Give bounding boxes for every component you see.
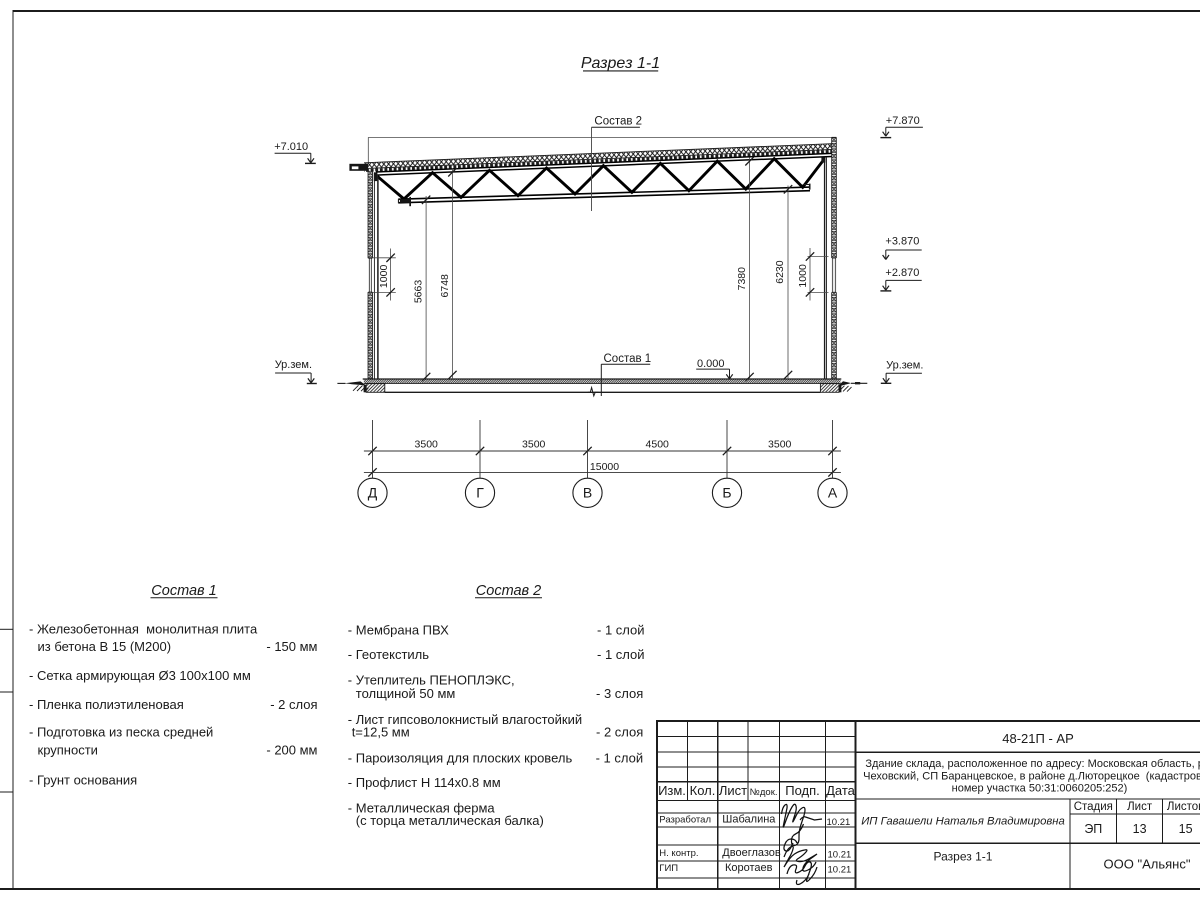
svg-text:ЭП: ЭП [1084, 822, 1102, 836]
svg-text:6230: 6230 [774, 260, 786, 284]
svg-text:Д: Д [368, 485, 378, 501]
svg-text:Состав 2: Состав 2 [476, 583, 541, 599]
svg-text:1000: 1000 [797, 264, 809, 288]
svg-text:Дата: Дата [826, 783, 856, 798]
svg-text:- 1 слой: - 1 слой [596, 751, 644, 766]
svg-text:Ур.зем.: Ур.зем. [886, 359, 923, 371]
svg-text:- Пленка полиэтиленовая: - Пленка полиэтиленовая [29, 697, 184, 712]
svg-text:1000: 1000 [378, 265, 390, 289]
svg-text:+7.870: +7.870 [886, 115, 920, 127]
svg-text:Г: Г [476, 485, 484, 501]
svg-text:Состав 1: Состав 1 [151, 583, 216, 599]
svg-text:- Мембрана ПВХ: - Мембрана ПВХ [348, 623, 449, 638]
svg-text:Разрез 1-1: Разрез 1-1 [581, 55, 660, 72]
svg-text:Н. контр.: Н. контр. [659, 848, 698, 859]
svg-text:13: 13 [1133, 822, 1147, 836]
svg-text:+3.870: +3.870 [885, 236, 919, 248]
svg-text:Разрез 1-1: Разрез 1-1 [934, 850, 993, 864]
svg-text:10.21: 10.21 [827, 817, 851, 828]
svg-text:(с торца металлическая балка): (с торца металлическая балка) [356, 813, 544, 828]
svg-text:ООО "Альянс": ООО "Альянс" [1104, 857, 1191, 872]
svg-text:Разработал: Разработал [659, 814, 711, 825]
svg-text:- 200 мм: - 200 мм [266, 743, 317, 758]
svg-text:ИП Гавашели Наталья Владимиров: ИП Гавашели Наталья Владимировна [861, 816, 1065, 828]
svg-text:Двоеглазов: Двоеглазов [722, 847, 781, 859]
svg-text:+7.010: +7.010 [274, 141, 308, 153]
svg-text:6748: 6748 [439, 274, 451, 298]
svg-text:- Профлист Н 114х0.8 мм: - Профлист Н 114х0.8 мм [348, 775, 501, 790]
svg-text:48-21П - АР: 48-21П - АР [1002, 731, 1074, 746]
svg-text:Б: Б [722, 485, 731, 501]
svg-text:- 1 слой: - 1 слой [597, 623, 645, 638]
svg-text:Состав 1: Состав 1 [604, 353, 652, 365]
svg-text:3500: 3500 [415, 439, 439, 451]
svg-text:- Грунт основания: - Грунт основания [29, 773, 137, 788]
svg-text:Шабалина: Шабалина [722, 813, 776, 825]
svg-text:0.000: 0.000 [697, 358, 725, 370]
svg-text:Лист: Лист [1127, 801, 1153, 813]
svg-text:Лист: Лист [719, 783, 747, 798]
svg-text:Листов: Листов [1167, 801, 1200, 813]
svg-text:Коротаев: Коротаев [725, 862, 773, 874]
svg-text:t=12,5 мм: t=12,5 мм [352, 725, 410, 740]
svg-text:Стадия: Стадия [1074, 801, 1113, 813]
svg-text:5663: 5663 [413, 280, 425, 304]
svg-text:- Железобетонная монолитная п: - Железобетонная монолитная плита [29, 621, 258, 636]
svg-text:- Пароизоляция для плоских кро: - Пароизоляция для плоских кровель [348, 751, 573, 766]
svg-text:- 1 слой: - 1 слой [597, 647, 645, 662]
svg-text:№док.: №док. [750, 787, 778, 798]
svg-text:номер участка 50:31:0060205:25: номер участка 50:31:0060205:252) [952, 783, 1128, 795]
svg-text:толщиной 50 мм: толщиной 50 мм [356, 686, 456, 701]
svg-text:ГИП: ГИП [659, 863, 678, 874]
svg-text:- 2 слоя: - 2 слоя [270, 697, 317, 712]
svg-text:А: А [828, 485, 838, 501]
svg-text:15000: 15000 [590, 461, 619, 473]
svg-text:Здание склада, расположенное п: Здание склада, расположенное по адресу: … [865, 758, 1200, 770]
svg-text:15: 15 [1179, 822, 1193, 836]
svg-text:из бетона В 15 (М200): из бетона В 15 (М200) [38, 639, 172, 654]
svg-text:4500: 4500 [646, 439, 670, 451]
svg-text:Кол.: Кол. [690, 783, 716, 798]
svg-text:Изм.: Изм. [658, 783, 686, 798]
svg-text:+2.870: +2.870 [885, 267, 919, 279]
svg-text:- Подготовка из песка средней: - Подготовка из песка средней [29, 725, 213, 740]
svg-text:В: В [583, 485, 592, 501]
svg-text:- 150 мм: - 150 мм [266, 639, 317, 654]
svg-text:Чеховский, СП Баранцевское, в: Чеховский, СП Баранцевское, в районе д.Л… [863, 770, 1200, 782]
svg-text:7380: 7380 [736, 267, 748, 291]
svg-text:10.21: 10.21 [828, 850, 852, 861]
svg-text:- Геотекстиль: - Геотекстиль [348, 647, 429, 662]
svg-text:- 2 слоя: - 2 слоя [596, 725, 643, 740]
svg-text:Подп.: Подп. [785, 783, 820, 798]
svg-text:Состав 2: Состав 2 [594, 115, 642, 127]
svg-text:- 3 слоя: - 3 слоя [596, 686, 643, 701]
svg-text:- Сетка армирующая Ø3 100х100: - Сетка армирующая Ø3 100х100 мм [29, 668, 251, 683]
svg-text:Ур.зем.: Ур.зем. [275, 359, 312, 371]
svg-text:3500: 3500 [522, 439, 546, 451]
svg-text:3500: 3500 [768, 439, 792, 451]
svg-text:10.21: 10.21 [828, 865, 852, 876]
svg-text:крупности: крупности [38, 743, 98, 758]
